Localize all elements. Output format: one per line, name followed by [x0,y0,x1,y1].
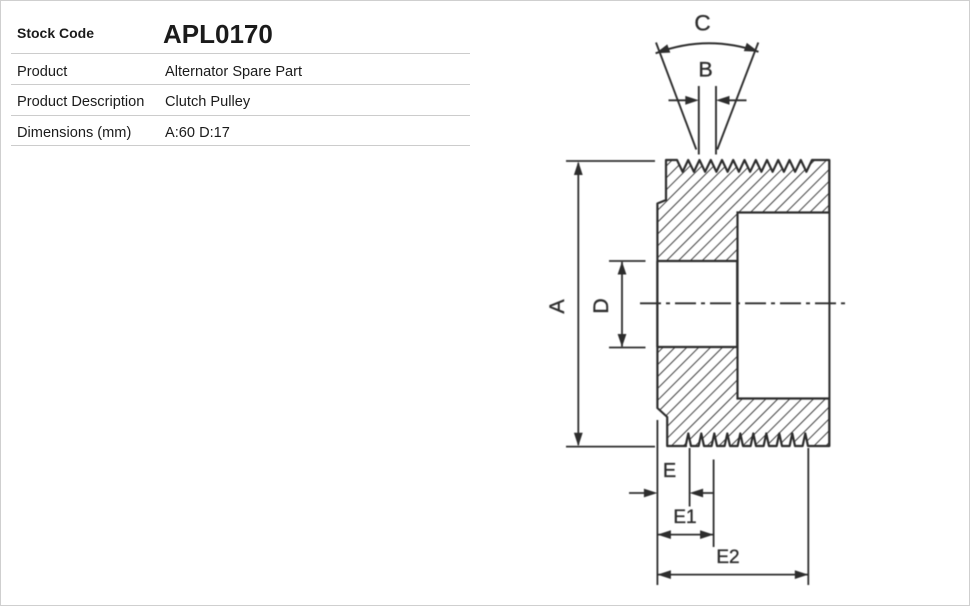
svg-text:E2: E2 [716,547,739,568]
svg-text:E1: E1 [673,507,696,528]
svg-text:D: D [589,298,613,314]
svg-text:C: C [694,10,710,35]
svg-text:E: E [663,460,676,482]
svg-text:A: A [545,299,569,314]
svg-text:B: B [698,58,712,82]
